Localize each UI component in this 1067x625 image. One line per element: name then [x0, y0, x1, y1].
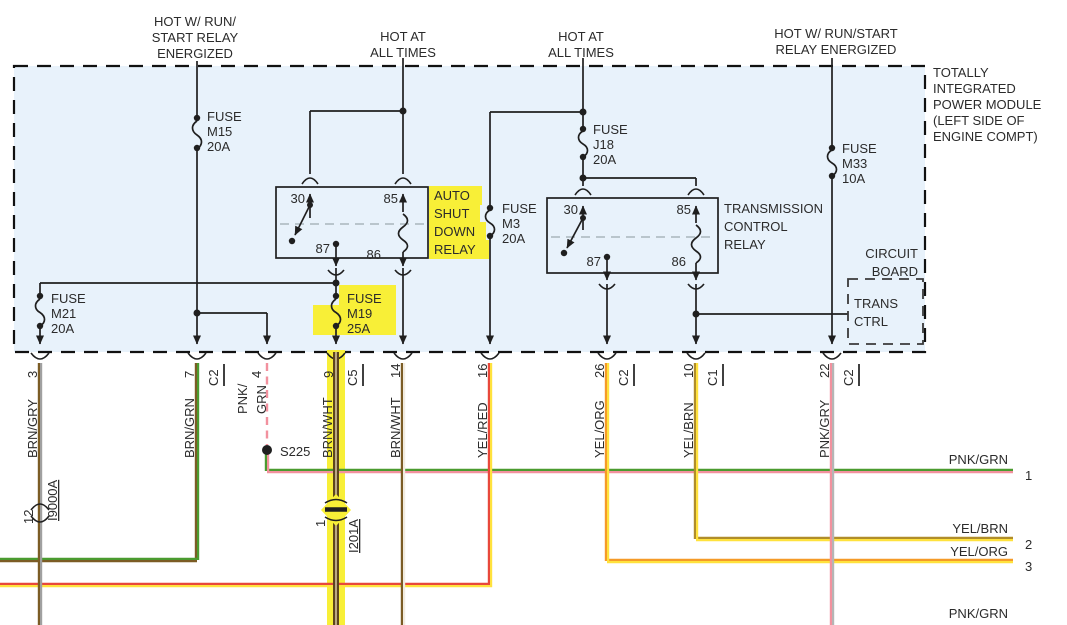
- pin-number: 7: [182, 371, 197, 378]
- connector-id: C2: [841, 369, 856, 386]
- connector-id: C2: [616, 369, 631, 386]
- wire-pnk-grn: [266, 453, 1013, 472]
- fuse-m19-label: FUSE: [347, 291, 382, 306]
- module-name-line: INTEGRATED: [933, 81, 1016, 96]
- wire-name: PNK/GRN: [949, 606, 1008, 621]
- wire-name: YEL/ORG: [592, 400, 607, 458]
- wire-number: 2: [1025, 537, 1032, 552]
- wire-number: 3: [1025, 559, 1032, 574]
- asd-pin-30: 30: [291, 191, 305, 206]
- fuse-m33-amps: 10A: [842, 171, 865, 186]
- fuse-m33-id: M33: [842, 156, 867, 171]
- fuse-m33-label: FUSE: [842, 141, 877, 156]
- feed-label: ALL TIMES: [548, 45, 614, 60]
- fuse-j18-id: J18: [593, 137, 614, 152]
- inline-connector-id: I201A: [346, 519, 361, 553]
- wire-name: YEL/BRN: [952, 521, 1008, 536]
- feed-label: HOT AT: [380, 29, 426, 44]
- pin-number: 22: [817, 364, 832, 378]
- pin-number: 9: [321, 371, 336, 378]
- wiring-diagram-canvas: HOT W/ RUN/ START RELAY ENERGIZED HOT AT…: [0, 0, 1067, 625]
- fuse-j18-amps: 20A: [593, 152, 616, 167]
- asd-pin-87: 87: [316, 241, 330, 256]
- trans-ctrl-label: CTRL: [854, 314, 888, 329]
- fuse-m19-amps: 25A: [347, 321, 370, 336]
- inline-connector-id: I9000A: [45, 479, 60, 521]
- tcr-pin-86: 86: [672, 254, 686, 269]
- trans-ctrl-label: TRANS: [854, 296, 898, 311]
- feed-label: ENERGIZED: [157, 46, 233, 61]
- inline-connector-pin: 12: [21, 510, 36, 524]
- asd-relay-label: RELAY: [434, 242, 476, 257]
- module-name-line: ENGINE COMPT): [933, 129, 1038, 144]
- right-wire-labels: PNK/GRN 1 YEL/BRN 2 YEL/ORG 3 PNK/GRN: [949, 452, 1032, 621]
- fuse-m21-amps: 20A: [51, 321, 74, 336]
- splice-s225-dot: [262, 445, 272, 455]
- feed-label: RELAY ENERGIZED: [776, 42, 897, 57]
- module-name-label: TOTALLY INTEGRATED POWER MODULE (LEFT SI…: [933, 65, 1042, 144]
- wire-name: YEL/RED: [475, 402, 490, 458]
- pin-number: 3: [25, 371, 40, 378]
- fuse-m21-id: M21: [51, 306, 76, 321]
- connector-id: C5: [345, 369, 360, 386]
- module-name-line: (LEFT SIDE OF: [933, 113, 1025, 128]
- fuse-m3-id: M3: [502, 216, 520, 231]
- feed-label: HOT AT: [558, 29, 604, 44]
- feed-label: HOT W/ RUN/: [154, 14, 236, 29]
- pin-number: 26: [592, 364, 607, 378]
- tcr-pin-85: 85: [677, 202, 691, 217]
- splice-s225-label: S225: [280, 444, 310, 459]
- wire-name: BRN/GRN: [182, 398, 197, 458]
- wire-name: BRN/GRY: [25, 399, 40, 458]
- tcr-relay-label: TRANSMISSION: [724, 201, 823, 216]
- harness-wires: [0, 352, 1013, 625]
- wire-name: GRN: [254, 385, 269, 414]
- pin-number: 16: [475, 364, 490, 378]
- module-name-line: POWER MODULE: [933, 97, 1042, 112]
- asd-pin-85: 85: [384, 191, 398, 206]
- feed-label: START RELAY: [152, 30, 239, 45]
- fuse-m3-label: FUSE: [502, 201, 537, 216]
- wiring-diagram: HOT W/ RUN/ START RELAY ENERGIZED HOT AT…: [0, 0, 1067, 625]
- circuit-board-label: CIRCUIT: [865, 246, 918, 261]
- fuse-m15-amps: 20A: [207, 139, 230, 154]
- module-bottom-connector-cups: [31, 353, 841, 359]
- wire-name: BRN/WHT: [388, 397, 403, 458]
- asd-pin-86: 86: [367, 247, 381, 262]
- feed-label: HOT W/ RUN/START: [774, 26, 898, 41]
- fuse-m19-id: M19: [347, 306, 372, 321]
- wire-pin7-brn-grn: [0, 363, 198, 561]
- tcr-relay-label: CONTROL: [724, 219, 788, 234]
- fuse-m21-label: FUSE: [51, 291, 86, 306]
- pin-number: 14: [388, 364, 403, 378]
- wire-name: PNK/: [235, 383, 250, 414]
- tcr-pin-30: 30: [564, 202, 578, 217]
- circuit-board-label: BOARD: [872, 264, 918, 279]
- pin-and-wire-labels: 3 BRN/GRY 7 C2 BRN/GRN 4 PNK/ GRN 9 C5 B…: [25, 364, 859, 458]
- inline-connector-pin: 1: [313, 520, 328, 527]
- wire-number: 1: [1025, 468, 1032, 483]
- wire-name: BRN/WHT: [320, 397, 335, 458]
- asd-relay-label: DOWN: [434, 224, 475, 239]
- connector-id: C1: [705, 369, 720, 386]
- fuse-m3-amps: 20A: [502, 231, 525, 246]
- feed-labels: HOT W/ RUN/ START RELAY ENERGIZED HOT AT…: [152, 14, 898, 61]
- asd-relay-label: SHUT: [434, 206, 469, 221]
- fuse-j18-label: FUSE: [593, 122, 628, 137]
- pin-number: 4: [249, 371, 264, 378]
- pin-number: 10: [681, 364, 696, 378]
- wire-name: PNK/GRY: [817, 399, 832, 458]
- fuse-m15-label: FUSE: [207, 109, 242, 124]
- tcr-pin-87: 87: [587, 254, 601, 269]
- feed-label: ALL TIMES: [370, 45, 436, 60]
- wire-name: PNK/GRN: [949, 452, 1008, 467]
- connector-id: C2: [206, 369, 221, 386]
- tcr-relay-label: RELAY: [724, 237, 766, 252]
- wire-name: YEL/ORG: [950, 544, 1008, 559]
- asd-relay-label: AUTO: [434, 188, 470, 203]
- wire-name: YEL/BRN: [681, 402, 696, 458]
- module-name-line: TOTALLY: [933, 65, 989, 80]
- fuse-m15-id: M15: [207, 124, 232, 139]
